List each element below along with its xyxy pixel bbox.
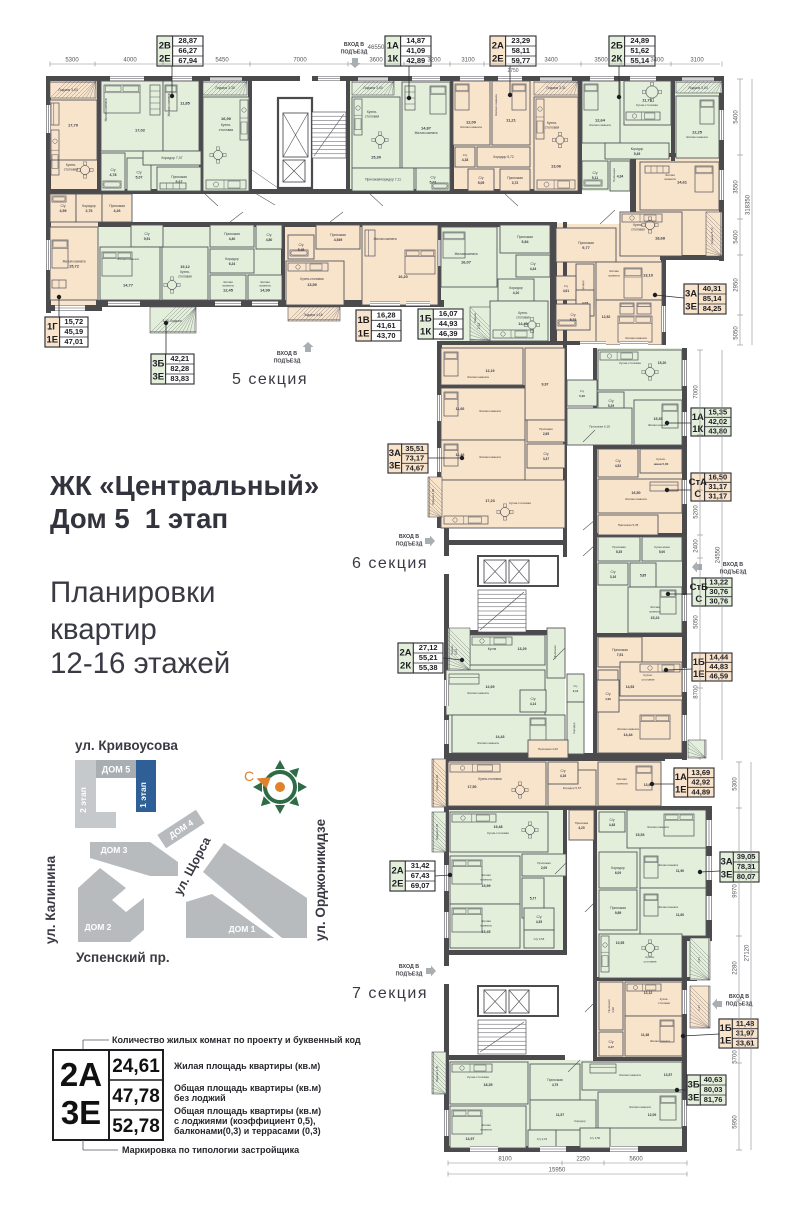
svg-text:С/у: С/у [430, 176, 435, 180]
svg-text:17,02: 17,02 [135, 128, 146, 133]
svg-text:12,19: 12,19 [486, 369, 495, 373]
svg-text:15,35: 15,35 [654, 417, 663, 421]
svg-text:Прихожая: Прихожая [575, 821, 589, 825]
svg-text:С/у: С/у [560, 769, 565, 773]
svg-text:3А: 3А [721, 857, 733, 868]
svg-text:3А: 3А [389, 448, 401, 459]
svg-text:Жилая: Жилая [617, 777, 627, 781]
svg-text:27,12: 27,12 [419, 643, 438, 652]
svg-text:14,44: 14,44 [709, 653, 729, 662]
svg-text:4,26: 4,26 [114, 209, 121, 213]
svg-text:Жилая комната: Жилая комната [658, 863, 679, 867]
svg-text:Прихожая: Прихожая [547, 1078, 563, 1082]
svg-text:Кухня-: Кухня- [645, 955, 654, 959]
svg-text:40,31: 40,31 [703, 284, 722, 293]
svg-text:14,61: 14,61 [677, 180, 688, 185]
svg-text:С/у: С/у [543, 452, 548, 456]
svg-text:ул. Кривоусова: ул. Кривоусова [75, 738, 178, 753]
svg-text:11,48: 11,48 [641, 1033, 649, 1037]
svg-text:6,24: 6,24 [229, 262, 236, 266]
svg-text:3Б: 3Б [152, 359, 164, 370]
svg-text:5950: 5950 [733, 1115, 739, 1129]
svg-text:24,89: 24,89 [630, 36, 649, 45]
svg-text:Жилая комната: Жилая комната [479, 409, 501, 413]
svg-text:Жилая: Жилая [481, 919, 491, 923]
svg-text:81,76: 81,76 [704, 1095, 723, 1104]
svg-text:Кухня-: Кухня- [633, 223, 643, 227]
svg-text:С/у: С/у [608, 399, 613, 403]
svg-text:Кухня-столовая: Кухня-столовая [619, 361, 641, 365]
svg-text:Кухня-: Кухня- [221, 123, 231, 127]
svg-text:4,14: 4,14 [530, 702, 536, 706]
svg-text:Лоджия 3,63: Лоджия 3,63 [58, 88, 78, 92]
svg-text:Жилая комната: Жилая комната [629, 1105, 651, 1109]
svg-text:квартир: квартир [50, 613, 157, 646]
svg-text:9970: 9970 [733, 884, 739, 898]
svg-text:44,83: 44,83 [709, 662, 728, 671]
svg-text:С/у: С/у [592, 171, 597, 175]
svg-text:1Е: 1Е [720, 1036, 732, 1047]
svg-text:ул. Калинина: ул. Калинина [43, 855, 58, 944]
svg-text:Прихожая: Прихожая [539, 427, 553, 431]
svg-text:ПОДЪЕЗД: ПОДЪЕЗД [720, 570, 747, 576]
svg-text:Кухня-: Кухня- [367, 110, 377, 114]
svg-text:66,27: 66,27 [178, 46, 197, 55]
svg-text:16,07: 16,07 [461, 260, 472, 265]
svg-text:4,16: 4,16 [560, 774, 566, 778]
svg-text:Коридор: Коридор [225, 257, 239, 261]
svg-text:3,37: 3,37 [543, 457, 549, 461]
svg-text:5 секция: 5 секция [232, 371, 308, 388]
svg-text:19,12: 19,12 [180, 265, 190, 269]
svg-text:52,78: 52,78 [112, 1116, 160, 1137]
svg-text:комната: комната [664, 177, 676, 181]
svg-text:Жилая комната: Жилая комната [686, 135, 708, 139]
svg-text:Общая площадь квартиры (кв.м): Общая площадь квартиры (кв.м) [174, 1083, 321, 1093]
svg-text:4,90: 4,90 [605, 697, 611, 701]
svg-text:15,22: 15,22 [651, 616, 660, 620]
svg-text:14,53: 14,53 [626, 685, 635, 689]
svg-text:2400: 2400 [694, 539, 700, 553]
svg-text:5,07: 5,07 [136, 176, 143, 180]
svg-text:4,34: 4,34 [454, 649, 458, 655]
svg-text:2Е: 2Е [159, 54, 171, 65]
svg-text:столовая: столовая [642, 678, 655, 682]
svg-text:85,14: 85,14 [703, 294, 723, 303]
svg-text:14,43: 14,43 [496, 735, 505, 739]
svg-text:ВХОД В: ВХОД В [399, 534, 419, 540]
svg-text:Кухня-: Кухня- [66, 163, 76, 167]
svg-text:2Е: 2Е [492, 54, 504, 65]
svg-text:Прихожая: Прихожая [109, 204, 125, 208]
svg-text:9,77: 9,77 [582, 246, 589, 250]
svg-text:Планировки: Планировки [50, 576, 215, 609]
svg-text:73,17: 73,17 [405, 454, 424, 463]
svg-text:1Е: 1Е [693, 669, 705, 680]
svg-text:Коридор: Коридор [631, 147, 644, 151]
svg-text:39,05: 39,05 [737, 852, 756, 861]
svg-text:11,21: 11,21 [506, 118, 517, 123]
svg-text:Лоджия 3,60: Лоджия 3,60 [363, 86, 383, 90]
svg-text:столовая: столовая [545, 126, 560, 130]
svg-text:Лоджия 3,31: Лоджия 3,31 [546, 86, 566, 90]
svg-text:7,51: 7,51 [617, 653, 624, 657]
svg-text:4,549: 4,549 [334, 238, 343, 242]
svg-text:4,90: 4,90 [611, 1007, 615, 1013]
svg-text:Прихожая: Прихожая [612, 545, 626, 549]
svg-text:Лоджия 3,35: Лоджия 3,35 [215, 86, 235, 90]
svg-text:41,09: 41,09 [406, 46, 425, 55]
svg-text:Лоджия 4,18: Лоджия 4,18 [303, 313, 322, 317]
svg-text:15,45: 15,45 [482, 930, 491, 934]
svg-text:Прихожая 5,35: Прихожая 5,35 [618, 523, 639, 527]
svg-text:14,77: 14,77 [123, 283, 134, 288]
svg-text:3550: 3550 [734, 180, 740, 194]
svg-text:Коридор: Коридор [574, 1119, 585, 1123]
svg-text:Количество жилых комнат по про: Количество жилых комнат по проекту и бук… [112, 1035, 361, 1045]
svg-text:1В: 1В [358, 315, 370, 326]
svg-text:14,44: 14,44 [624, 733, 633, 737]
svg-text:Прихожая: Прихожая [610, 906, 626, 910]
svg-text:7000: 7000 [293, 58, 307, 64]
svg-text:2В: 2В [159, 41, 171, 52]
svg-text:2А: 2А [400, 648, 412, 659]
svg-text:2А: 2А [492, 41, 504, 52]
svg-text:5050: 5050 [694, 615, 700, 629]
svg-text:47,78: 47,78 [112, 1086, 160, 1107]
svg-text:4,78: 4,78 [110, 173, 117, 177]
svg-text:7000: 7000 [694, 385, 700, 399]
svg-text:13,69: 13,69 [691, 768, 710, 777]
svg-text:15,20: 15,20 [658, 361, 667, 365]
svg-text:83,83: 83,83 [170, 374, 189, 383]
svg-text:12,52: 12,52 [602, 315, 611, 319]
svg-text:2,92: 2,92 [477, 323, 481, 330]
svg-text:Кухня-столовая: Кухня-столовая [509, 501, 531, 505]
svg-text:Лоджия 3,93: Лоджия 3,93 [435, 774, 439, 791]
svg-text:18,35: 18,35 [484, 1083, 493, 1087]
svg-text:Жилая комната: Жилая комната [589, 123, 611, 127]
svg-text:12,45: 12,45 [223, 288, 234, 293]
svg-text:4,79: 4,79 [552, 1083, 558, 1087]
svg-text:17,23: 17,23 [485, 499, 495, 503]
svg-text:67,43: 67,43 [411, 871, 430, 880]
svg-text:С/у: С/у [605, 692, 610, 696]
svg-text:Кухня: Кухня [488, 647, 497, 651]
svg-text:Лоджия 3,45: Лоджия 3,45 [435, 1065, 439, 1082]
svg-text:31,17: 31,17 [708, 482, 727, 491]
svg-text:2280: 2280 [733, 961, 739, 975]
svg-text:11,57: 11,57 [556, 1113, 564, 1117]
svg-text:16,50: 16,50 [632, 491, 641, 495]
svg-text:без лоджий: без лоджий [174, 1093, 226, 1103]
svg-text:1А: 1А [675, 772, 687, 783]
svg-text:12,69: 12,69 [486, 685, 495, 689]
svg-text:31,17: 31,17 [708, 491, 727, 500]
svg-text:16,20: 16,20 [398, 275, 408, 279]
svg-text:ВХОД В: ВХОД В [723, 562, 743, 568]
svg-text:Жилая комната: Жилая комната [460, 125, 482, 129]
svg-text:ПОДЪЕЗД: ПОДЪЕЗД [274, 359, 301, 365]
svg-text:Кухня-столовая: Кухня-столовая [478, 777, 501, 781]
svg-text:3Е: 3Е [61, 1094, 101, 1131]
svg-text:Лоджия 3,04: Лоджия 3,04 [688, 86, 708, 90]
svg-text:Прихожая 6,18: Прихожая 6,18 [589, 425, 610, 429]
svg-text:Жилая комната: Жилая комната [494, 94, 498, 116]
svg-text:9,51: 9,51 [144, 237, 151, 241]
svg-text:2Е: 2Е [392, 879, 404, 890]
svg-text:Жилая комната: Жилая комната [454, 252, 477, 256]
svg-text:1А: 1А [692, 412, 704, 423]
svg-text:С/у: С/у [144, 232, 149, 236]
svg-text:Кухня-: Кухня- [547, 121, 557, 125]
svg-text:Жилая комната: Жилая комната [467, 375, 489, 379]
svg-text:Кухня-столовая: Кухня-столовая [636, 103, 658, 107]
svg-text:5300: 5300 [65, 58, 79, 64]
svg-text:Жилая комната: Жилая комната [477, 741, 499, 745]
svg-text:столовая: столовая [178, 275, 192, 279]
svg-text:28,87: 28,87 [178, 36, 197, 45]
svg-text:4,20: 4,20 [578, 826, 584, 830]
svg-text:16,90: 16,90 [221, 116, 232, 121]
svg-text:30,76: 30,76 [709, 587, 728, 596]
svg-text:46,59: 46,59 [709, 671, 728, 680]
svg-text:12-16 этажей: 12-16 этажей [50, 647, 230, 680]
svg-text:Коридор 5,72: Коридор 5,72 [493, 155, 514, 159]
svg-text:2950: 2950 [734, 278, 740, 292]
svg-text:42,02: 42,02 [708, 417, 727, 426]
svg-text:Коридор: Коридор [82, 204, 96, 208]
svg-text:3500: 3500 [594, 58, 608, 64]
svg-text:3Б: 3Б [688, 1080, 700, 1091]
svg-text:43,80: 43,80 [708, 426, 727, 435]
svg-text:12,09: 12,09 [648, 1113, 657, 1117]
svg-text:4,10: 4,10 [513, 291, 520, 295]
svg-text:3,16: 3,16 [610, 575, 616, 579]
svg-text:столовая: столовая [658, 1001, 670, 1005]
svg-text:12,00: 12,00 [466, 120, 477, 125]
svg-text:Прихожая: Прихожая [171, 175, 187, 179]
svg-text:Прихожая: Прихожая [537, 861, 551, 865]
svg-text:80,07: 80,07 [737, 872, 756, 881]
svg-text:Лоджия 5,72: Лоджия 5,72 [710, 227, 714, 245]
svg-text:84,25: 84,25 [703, 304, 722, 313]
svg-text:23,29: 23,29 [511, 36, 530, 45]
svg-text:ДОМ 2: ДОМ 2 [85, 922, 112, 932]
svg-text:13,29: 13,29 [518, 647, 527, 651]
svg-text:4,18: 4,18 [462, 158, 469, 162]
svg-text:13,59: 13,59 [307, 283, 317, 287]
svg-text:16,50: 16,50 [708, 473, 727, 482]
svg-text:2А: 2А [392, 866, 404, 877]
svg-text:3,51: 3,51 [697, 957, 701, 963]
svg-text:4000: 4000 [123, 58, 137, 64]
svg-text:ПОДЪЕЗД: ПОДЪЕЗД [396, 972, 423, 978]
svg-text:318350: 318350 [746, 194, 752, 215]
svg-text:Жилая: Жилая [609, 269, 619, 273]
svg-text:2,65: 2,65 [543, 432, 549, 436]
svg-text:14,87: 14,87 [421, 126, 432, 131]
svg-text:комната: комната [608, 274, 620, 278]
svg-text:С/у: С/у [564, 284, 569, 288]
svg-text:5,67: 5,67 [176, 180, 183, 184]
svg-text:Маркировка по типологии зас: Маркировка по типологии застройщика [122, 1145, 300, 1155]
svg-text:3600: 3600 [369, 58, 383, 64]
svg-text:13,22: 13,22 [709, 578, 728, 587]
svg-text:5200: 5200 [694, 505, 700, 519]
svg-text:С/у: С/у [530, 697, 535, 701]
svg-text:3Е: 3Е [685, 302, 697, 313]
svg-text:1К: 1К [692, 424, 703, 435]
svg-text:58,11: 58,11 [512, 46, 530, 55]
svg-text:78,31: 78,31 [737, 862, 756, 871]
svg-text:1Е: 1Е [675, 785, 687, 796]
svg-text:1Б: 1Б [693, 657, 705, 668]
svg-text:11,66: 11,66 [456, 407, 465, 411]
svg-text:55,38: 55,38 [419, 663, 438, 672]
svg-text:47,01: 47,01 [64, 337, 83, 346]
svg-text:4,40: 4,40 [229, 237, 236, 241]
svg-text:комната: комната [649, 610, 661, 614]
svg-text:5,29: 5,29 [608, 404, 614, 408]
svg-text:Кухня-столовая: Кухня-столовая [300, 277, 323, 281]
svg-text:Коридор 7,07: Коридор 7,07 [162, 156, 183, 160]
svg-text:14,99: 14,99 [260, 288, 271, 293]
svg-text:5700: 5700 [733, 1050, 739, 1064]
svg-text:С/у: С/у [580, 389, 585, 393]
svg-text:2Б: 2Б [611, 41, 623, 52]
svg-text:80,03: 80,03 [704, 1085, 723, 1094]
svg-text:Коридор: Коридор [572, 722, 576, 733]
svg-text:4,34: 4,34 [617, 175, 624, 179]
svg-text:С/у 3,50: С/у 3,50 [590, 1136, 601, 1140]
svg-text:24550: 24550 [716, 546, 722, 563]
svg-text:5,11: 5,11 [592, 176, 599, 180]
svg-text:Жилая: Жилая [650, 605, 660, 609]
svg-text:43,70: 43,70 [377, 331, 396, 340]
svg-text:45,19: 45,19 [64, 327, 83, 336]
svg-text:2А: 2А [60, 1056, 102, 1093]
svg-text:С: С [244, 768, 254, 784]
svg-text:13,10: 13,10 [643, 273, 654, 278]
svg-text:3,47: 3,47 [608, 1045, 614, 1049]
svg-text:3Е: 3Е [152, 372, 164, 383]
svg-text:17,70: 17,70 [68, 123, 79, 128]
svg-text:Общая площадь квартиры (кв.м): Общая площадь квартиры (кв.м) [174, 1106, 321, 1116]
svg-text:2250: 2250 [576, 1157, 590, 1163]
svg-text:2 этап: 2 этап [78, 787, 88, 813]
svg-text:Жилая: Жилая [481, 873, 491, 877]
svg-text:ул. Орджоникидзе: ул. Орджоникидзе [313, 818, 328, 941]
svg-text:15,35: 15,35 [708, 408, 727, 417]
svg-text:15,53: 15,53 [636, 833, 645, 837]
svg-text:42,92: 42,92 [691, 778, 710, 787]
svg-text:Жилая комната: Жилая комната [658, 905, 679, 909]
svg-text:13,06: 13,06 [551, 164, 562, 169]
svg-text:5,00: 5,00 [659, 550, 665, 554]
svg-text:столовая: столовая [516, 316, 530, 320]
svg-text:столовая: столовая [219, 128, 234, 132]
svg-text:С/у: С/у [298, 243, 303, 247]
svg-text:С/у: С/у [463, 153, 468, 157]
svg-text:С: С [695, 594, 702, 605]
svg-text:Прихожая: Прихожая [224, 232, 240, 236]
svg-text:40,63: 40,63 [704, 1075, 723, 1084]
svg-text:5400: 5400 [734, 230, 740, 244]
svg-text:4,48: 4,48 [609, 823, 615, 827]
svg-text:5,05: 5,05 [478, 181, 485, 185]
svg-text:Успенский пр.: Успенский пр. [76, 950, 170, 965]
svg-text:С/у: С/у [136, 171, 141, 175]
svg-text:Прихожая/коридор 7,11: Прихожая/коридор 7,11 [365, 178, 401, 182]
svg-text:ВХОД В: ВХОД В [399, 964, 419, 970]
svg-text:СтБ: СтБ [690, 582, 709, 593]
svg-text:С/у: С/у [609, 818, 614, 822]
svg-text:1Е: 1Е [358, 328, 370, 339]
svg-text:51,62: 51,62 [630, 46, 649, 55]
svg-text:11,90: 11,90 [676, 869, 684, 873]
svg-text:4,61: 4,61 [563, 289, 569, 293]
svg-text:Жилая комната: Жилая комната [104, 98, 108, 121]
svg-text:ВХОД В: ВХОД В [344, 42, 364, 48]
svg-text:С/у 4,61: С/у 4,61 [537, 1137, 548, 1141]
svg-text:Лоджия 5,28: Лоджия 5,28 [435, 823, 439, 840]
svg-text:С/у: С/у [110, 168, 115, 172]
svg-text:14,97: 14,97 [466, 1137, 475, 1141]
svg-text:3,72: 3,72 [512, 181, 519, 185]
svg-text:55,21: 55,21 [419, 653, 438, 662]
svg-text:42,21: 42,21 [170, 354, 189, 363]
svg-text:44,93: 44,93 [439, 319, 458, 328]
svg-text:33,61: 33,61 [736, 1038, 755, 1047]
svg-text:Прихожая: Прихожая [507, 176, 523, 180]
svg-text:Жилая комната: Жилая комната [617, 727, 639, 731]
svg-text:Коридор 5,57: Коридор 5,57 [563, 786, 582, 790]
svg-text:С/у: С/у [610, 570, 615, 574]
svg-text:Лоджия: Лоджия [450, 645, 454, 655]
svg-text:4,80: 4,80 [266, 238, 273, 242]
svg-text:19,48: 19,48 [494, 825, 503, 829]
svg-text:6,09: 6,09 [615, 871, 621, 875]
svg-text:8700: 8700 [694, 685, 700, 699]
svg-text:ПОДЪЕЗД: ПОДЪЕЗД [396, 542, 423, 548]
svg-text:1К: 1К [420, 327, 431, 338]
svg-text:15950: 15950 [549, 1168, 566, 1174]
svg-text:15,99: 15,99 [482, 884, 491, 888]
svg-text:Коридор: Коридор [509, 286, 523, 290]
svg-text:3Е: 3Е [389, 461, 401, 472]
svg-text:5,85: 5,85 [640, 574, 646, 578]
svg-text:ПОДЪЕЗД: ПОДЪЕЗД [341, 50, 368, 56]
svg-text:82,28: 82,28 [170, 364, 189, 373]
svg-text:Лоджия 2,99: Лоджия 2,99 [431, 488, 435, 505]
svg-text:комната: комната [616, 782, 628, 786]
svg-text:Прихожая: Прихожая [612, 648, 628, 652]
svg-text:3Е: 3Е [721, 870, 733, 881]
svg-text:5,29: 5,29 [579, 394, 585, 398]
svg-text:17,50: 17,50 [468, 785, 477, 789]
svg-text:5600: 5600 [629, 1157, 643, 1163]
svg-text:Жилая: Жилая [481, 1123, 491, 1127]
svg-text:комната: комната [259, 284, 271, 288]
svg-text:3100: 3100 [461, 58, 475, 64]
svg-text:Прихожая: Прихожая [330, 233, 346, 237]
svg-text:12,25: 12,25 [692, 130, 703, 135]
svg-text:11,48: 11,48 [736, 1019, 754, 1028]
svg-text:Кухня-: Кухня- [656, 457, 665, 461]
svg-text:С/у 3,54: С/у 3,54 [534, 937, 545, 941]
svg-text:ДОМ 1: ДОМ 1 [229, 924, 256, 934]
